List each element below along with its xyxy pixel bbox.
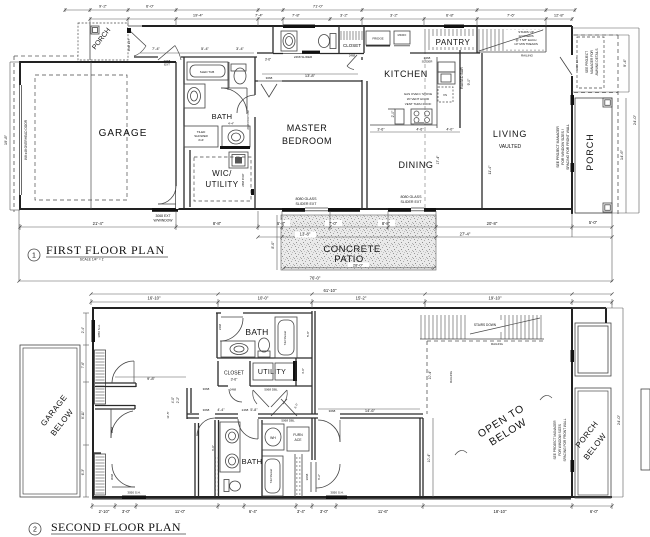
svg-text:CLOSET: CLOSET [224, 371, 244, 377]
svg-text:2: 2 [33, 527, 37, 534]
svg-text:7'-4": 7'-4" [255, 13, 264, 18]
svg-text:BATH: BATH [245, 327, 268, 337]
svg-text:18'-10": 18'-10" [494, 509, 508, 514]
svg-text:2468: 2468 [218, 323, 222, 330]
svg-text:3'-2": 3'-2" [340, 13, 349, 18]
svg-text:RAILING: RAILING [521, 54, 534, 58]
svg-text:W8 x48 OVERHEAD DOOR: W8 x48 OVERHEAD DOOR [24, 119, 28, 160]
svg-text:11'-0": 11'-0" [175, 509, 186, 514]
svg-text:3'-4": 3'-4" [297, 509, 306, 514]
svg-text:SLED TUB: SLED TUB [200, 70, 215, 74]
svg-text:VAULTED: VAULTED [499, 144, 522, 150]
svg-text:2668 PCKT: 2668 PCKT [241, 173, 245, 187]
svg-text:2'-4": 2'-4" [81, 327, 85, 333]
svg-text:5'-8": 5'-8" [306, 331, 310, 337]
svg-text:4'-6": 4'-6" [416, 128, 424, 132]
svg-text:GARAGE: GARAGE [99, 128, 148, 139]
svg-text:3068: 3068 [203, 387, 210, 391]
svg-text:3'-2": 3'-2" [390, 13, 399, 18]
svg-text:PANTRY: PANTRY [436, 38, 471, 47]
svg-text:2868: 2868 [110, 426, 114, 433]
svg-text:2'-2": 2'-2" [176, 397, 180, 403]
svg-text:12'-8": 12'-8" [554, 13, 565, 18]
svg-text:2468 PCKT DR: 2468 PCKT DR [246, 110, 250, 129]
svg-text:3068 EXT: 3068 EXT [155, 214, 170, 218]
svg-text:4'x4': 4'x4' [198, 138, 204, 142]
svg-text:7'-6": 7'-6" [507, 13, 516, 18]
svg-text:SLIDER EXT: SLIDER EXT [401, 200, 423, 204]
svg-text:3'-0": 3'-0" [122, 509, 131, 514]
svg-text:19'-10": 19'-10" [489, 296, 503, 301]
svg-text:5'-4": 5'-4" [201, 46, 210, 51]
svg-text:6'-4": 6'-4" [249, 509, 258, 514]
svg-text:15'-2": 15'-2" [356, 296, 367, 301]
svg-text:3068: 3068 [305, 473, 309, 480]
svg-text:3'-6": 3'-6" [265, 58, 271, 62]
svg-text:T&d Shower: T&d Shower [283, 331, 287, 345]
svg-text:MICRO: MICRO [398, 33, 407, 37]
svg-text:10" MIN TREADS: 10" MIN TREADS [514, 42, 538, 46]
svg-text:17'-4": 17'-4" [436, 155, 440, 164]
svg-text:3068: 3068 [266, 76, 273, 80]
svg-text:2468 SLIDER: 2468 SLIDER [294, 55, 313, 59]
svg-text:3068: 3068 [110, 473, 114, 480]
svg-text:4'-0": 4'-0" [301, 368, 305, 374]
svg-text:MASTER: MASTER [287, 123, 328, 133]
svg-text:PORCH: PORCH [585, 133, 595, 171]
svg-text:5'-8": 5'-8" [250, 408, 258, 412]
svg-text:W/WINDOW: W/WINDOW [153, 219, 173, 223]
svg-text:3'-6": 3'-6" [231, 378, 239, 382]
svg-text:WIC/: WIC/ [212, 169, 232, 178]
svg-text:6'-2": 6'-2" [317, 474, 321, 480]
svg-text:W/ VENT HOOD: W/ VENT HOOD [407, 97, 430, 101]
svg-text:7'-6": 7'-6" [81, 362, 85, 368]
svg-text:24'-0": 24'-0" [632, 114, 637, 125]
svg-text:20'-8": 20'-8" [487, 221, 498, 226]
svg-text:3068 EXT: 3068 EXT [575, 57, 579, 71]
svg-text:SECOND FLOOR PLAN: SECOND FLOOR PLAN [51, 520, 181, 534]
svg-text:FOR WINDOW SIZES: FOR WINDOW SIZES [558, 424, 562, 456]
svg-text:3'-4": 3'-4" [236, 46, 245, 51]
svg-text:SPACING FOR FRONT WALL: SPACING FOR FRONT WALL [563, 418, 567, 461]
svg-text:9'-0": 9'-0" [467, 78, 471, 86]
svg-text:3050 S.H.: 3050 S.H. [97, 324, 101, 338]
svg-text:SCALE 1/4" = 1': SCALE 1/4" = 1' [80, 258, 105, 262]
svg-text:CLOSET: CLOSET [343, 43, 361, 48]
svg-text:DINING: DINING [398, 160, 433, 170]
svg-text:9'-4": 9'-4" [622, 58, 627, 67]
svg-text:SLIDER EXT: SLIDER EXT [296, 202, 318, 206]
svg-text:SEE PROJECT: SEE PROJECT [585, 51, 589, 73]
svg-text:13'-8": 13'-8" [300, 232, 311, 237]
svg-text:19'-8": 19'-8" [3, 134, 8, 145]
svg-text:6'-3": 6'-3" [81, 469, 85, 475]
svg-text:21'-4": 21'-4" [93, 221, 104, 226]
svg-text:5068 DBL: 5068 DBL [281, 419, 295, 423]
svg-text:LIVING: LIVING [493, 129, 527, 139]
svg-text:VS: VS [443, 93, 447, 97]
svg-text:61'-10": 61'-10" [324, 288, 338, 293]
svg-text:9'-2": 9'-2" [99, 4, 108, 9]
svg-text:RAILING: RAILING [449, 370, 453, 383]
svg-text:3050 S.H.: 3050 S.H. [330, 491, 344, 495]
svg-text:6'-8": 6'-8" [277, 221, 286, 226]
svg-text:3'-6": 3'-6" [377, 128, 385, 132]
svg-text:10'-0": 10'-0" [258, 296, 269, 301]
svg-text:28'-0": 28'-0" [353, 262, 364, 267]
svg-text:14'-6": 14'-6" [619, 149, 624, 160]
svg-text:5'-0": 5'-0" [589, 220, 598, 225]
svg-text:2468: 2468 [242, 408, 249, 412]
svg-text:SEE PROJECT MANAGER: SEE PROJECT MANAGER [556, 126, 560, 168]
svg-text:4'-0": 4'-0" [446, 128, 454, 132]
svg-text:EXT: EXT [164, 63, 170, 67]
svg-text:8'-11": 8'-11" [81, 411, 85, 419]
svg-text:KITCHEN: KITCHEN [384, 69, 428, 79]
svg-text:6'-0": 6'-0" [590, 509, 599, 514]
svg-text:8'-0": 8'-0" [271, 241, 275, 249]
svg-text:5068 DBL: 5068 DBL [264, 388, 278, 392]
svg-text:27'-4": 27'-4" [460, 232, 471, 237]
svg-text:8'-8": 8'-8" [213, 221, 222, 226]
svg-text:76'-0": 76'-0" [310, 276, 321, 281]
svg-text:AWNING DETAILS: AWNING DETAILS [595, 49, 599, 76]
svg-text:GAS OVEN / STOVE: GAS OVEN / STOVE [404, 92, 432, 96]
svg-text:UTILITY: UTILITY [205, 180, 238, 189]
svg-text:T&d Shower: T&d Shower [269, 469, 273, 483]
svg-text:4'-4": 4'-4" [217, 408, 225, 412]
svg-text:FIRST FLOOR PLAN: FIRST FLOOR PLAN [46, 243, 165, 257]
svg-text:24'-0": 24'-0" [616, 414, 621, 425]
svg-text:8080 GLASS: 8080 GLASS [296, 197, 318, 201]
svg-text:11'-6": 11'-6" [378, 509, 389, 514]
svg-text:STAIRS DOWN: STAIRS DOWN [474, 323, 497, 327]
svg-text:7'-4": 7'-4" [152, 46, 161, 51]
svg-text:FRIDGE: FRIDGE [372, 37, 383, 41]
svg-text:SLIDER: SLIDER [422, 60, 434, 64]
svg-text:11'-4": 11'-4" [488, 165, 492, 175]
svg-text:19'-4": 19'-4" [193, 13, 204, 18]
svg-text:16'-10": 16'-10" [148, 296, 162, 301]
svg-text:6'-8": 6'-8" [446, 13, 455, 18]
svg-text:VENT THRU ROOF: VENT THRU ROOF [405, 102, 432, 106]
svg-text:RAISED BAR: RAISED BAR [460, 67, 464, 89]
svg-text:2468: 2468 [230, 388, 237, 392]
svg-text:SEE PROJECT MANAGER: SEE PROJECT MANAGER [553, 420, 557, 460]
svg-text:FURN: FURN [293, 433, 303, 437]
svg-text:1: 1 [32, 253, 36, 260]
svg-text:ACE: ACE [295, 438, 303, 442]
svg-text:3068: 3068 [329, 409, 336, 413]
svg-text:8080 GLASS: 8080 GLASS [401, 195, 423, 199]
svg-text:10'-4": 10'-4" [427, 453, 431, 462]
svg-text:7'-8": 7'-8" [292, 13, 301, 18]
svg-text:6'-0": 6'-0" [146, 4, 155, 9]
svg-text:11'-5": 11'-5" [166, 411, 170, 418]
svg-text:3068: 3068 [203, 408, 210, 412]
svg-text:FOR WINDOW SIZES /: FOR WINDOW SIZES / [561, 129, 565, 165]
svg-text:BATH: BATH [212, 112, 233, 121]
svg-text:3068 EXT: 3068 EXT [127, 38, 131, 51]
svg-text:BEDROOM: BEDROOM [282, 136, 332, 146]
svg-text:71'-0": 71'-0" [313, 4, 324, 9]
svg-text:10'-4": 10'-4" [428, 370, 432, 379]
svg-text:2'-10": 2'-10" [99, 509, 110, 514]
svg-text:3'-0": 3'-0" [320, 509, 329, 514]
svg-text:RAILING: RAILING [491, 342, 504, 346]
svg-text:WH: WH [270, 436, 276, 440]
svg-text:4'-4": 4'-4" [228, 122, 234, 126]
svg-text:SPACING FOR FRONT WALL: SPACING FOR FRONT WALL [566, 124, 570, 170]
svg-text:2468: 2468 [349, 54, 356, 58]
svg-text:UTILITY: UTILITY [258, 369, 286, 376]
svg-text:3050 S.H.: 3050 S.H. [127, 491, 141, 495]
svg-text:MANAGER FOR: MANAGER FOR [590, 49, 594, 73]
svg-text:2'-0": 2'-0" [391, 110, 395, 118]
svg-text:BATH: BATH [242, 457, 263, 466]
svg-text:4'-0": 4'-0" [171, 397, 175, 403]
